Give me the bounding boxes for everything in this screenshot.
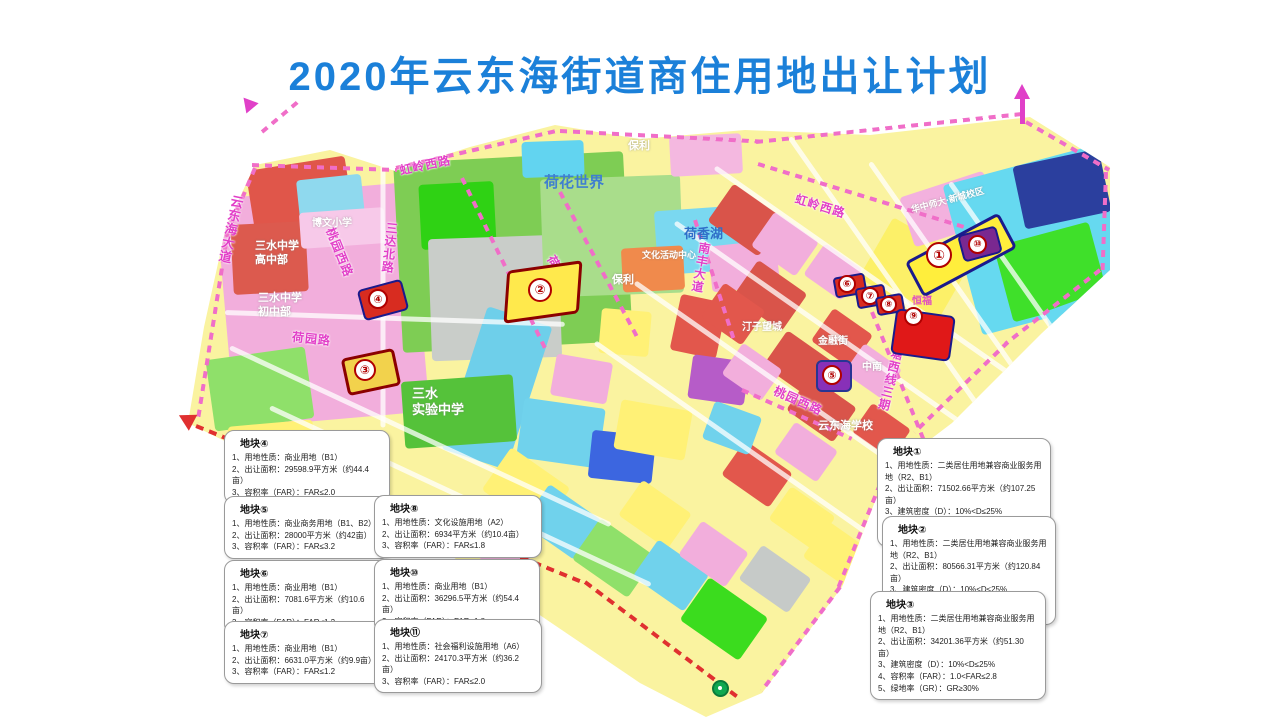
plot-callout-title: 地块① (893, 443, 1043, 458)
plot-marker-9: ⑨ (904, 307, 923, 326)
plot-marker-6: ⑥ (838, 275, 856, 293)
plot-marker-4: ④ (368, 289, 388, 309)
plot-parcel-9 (890, 308, 956, 362)
boundary-red-dash (584, 580, 738, 698)
plot-callout-11: 地块⑪ 1、用地性质：社会福利设施用地（A6） 2、出让面积：24170.3平方… (374, 619, 542, 693)
boundary-dash (756, 112, 1025, 144)
boundary-dash (760, 586, 841, 692)
red-arrow-icon (175, 407, 198, 430)
poster-canvas: 2020年云东海街道商住用地出让计划 (0, 0, 1280, 720)
area-label-culture-center: 文化活动中心 (642, 250, 696, 261)
road-dash (460, 177, 547, 350)
area-label-ccnu-campus: 华中师大·新城校区 (910, 186, 985, 216)
map-overlay: 云东海大道 虹岭西路 三达北路 荷园路 桃园西路 荷香路 南丰大道 虹岭西路 桃… (0, 0, 1280, 720)
boundary-dash (1101, 172, 1108, 272)
plot-marker-10: ⑩ (968, 235, 987, 254)
road-label-honglingxi-road-east: 虹岭西路 (793, 190, 848, 221)
plot-callout-5: 地块⑤ 1、用地性质：商业商务用地（B1、B2） 2、出让面积：28000平方米… (224, 496, 390, 559)
magenta-arrow-icon (237, 92, 258, 113)
plot-callout-lines: 1、用地性质：文化设施用地（A2） 2、出让面积：6934平方米（约10.4亩）… (382, 517, 534, 552)
plot-marker-2: ② (528, 278, 552, 302)
road-label-heyuan-road: 荷园路 (291, 328, 332, 349)
plot-callout-lines: 1、用地性质：商业商务用地（B1、B2） 2、出让面积：28000平方米（约42… (232, 518, 382, 553)
plot-callout-lines: 1、用地性质：二类居住用地兼容商业服务用地（R2、B1） 2、出让面积：3420… (878, 613, 1038, 694)
boundary-dash (560, 129, 760, 143)
road-label-tangxi-line-phase3: 塘西线三期 (875, 346, 907, 413)
area-label-sanshui-junior: 三水中学 初中部 (258, 292, 302, 320)
plot-callout-title: 地块② (898, 521, 1048, 536)
road-label-taoyuanxi-road: 桃园西路 (322, 225, 357, 280)
area-label-poly-north: 保利 (628, 140, 650, 154)
boundary-dash (1025, 120, 1110, 171)
boundary-dash (1004, 268, 1101, 345)
north-line (1020, 98, 1025, 124)
plot-callout-title: 地块⑦ (240, 626, 382, 641)
plot-marker-5: ⑤ (822, 365, 842, 385)
plot-callout-title: 地块⑪ (390, 624, 534, 639)
location-pin-icon (712, 680, 729, 697)
area-label-sanshui-high: 三水中学 高中部 (255, 240, 299, 268)
plot-callout-title: 地块④ (240, 435, 382, 450)
plot-callout-8: 地块⑧ 1、用地性质：文化设施用地（A2） 2、出让面积：6934平方米（约10… (374, 495, 542, 558)
plot-callout-title: 地块⑤ (240, 501, 382, 516)
plot-marker-3: ③ (354, 359, 376, 381)
plot-callout-title: 地块⑩ (390, 564, 532, 579)
area-label-bowen-primary: 博文小学 (312, 218, 352, 231)
plot-callout-4: 地块④ 1、用地性质：商业用地（B1） 2、出让面积：29598.9平方米（约4… (224, 430, 390, 504)
plot-callout-3: 地块③ 1、用地性质：二类居住用地兼容商业服务用地（R2、B1） 2、出让面积：… (870, 591, 1046, 700)
area-label-financial-street: 金融街 (818, 336, 848, 349)
north-arrow-icon (1014, 84, 1030, 99)
road-label-sandabei-road: 三达北路 (379, 221, 401, 274)
area-label-yundonghai-school: 云东海学校 (818, 420, 873, 434)
plot-marker-8: ⑧ (880, 296, 897, 313)
road-label-yundonghai-avenue: 云东海大道 (214, 193, 247, 265)
road-label-honglingxi-road: 虹岭西路 (398, 151, 452, 178)
area-label-poly-south: 保利 (612, 274, 634, 288)
area-label-hexiang-lake: 荷香湖 (684, 226, 723, 242)
boundary-dash (261, 100, 300, 134)
boundary-dash (252, 163, 397, 172)
plot-callout-lines: 1、用地性质：商业用地（B1） 2、出让面积：29598.9平方米（约44.4亩… (232, 452, 382, 498)
plot-callout-lines: 1、用地性质：社会福利设施用地（A6） 2、出让面积：24170.3平方米（约3… (382, 641, 534, 687)
plot-callout-7: 地块⑦ 1、用地性质：商业用地（B1） 2、出让面积：6631.0平方米（约9.… (224, 621, 390, 684)
plot-callout-title: 地块③ (886, 596, 1038, 611)
plot-callout-title: 地块⑥ (240, 565, 380, 580)
area-label-sanshui-experimental: 三水 实验中学 (412, 386, 464, 419)
plot-callout-title: 地块⑧ (390, 500, 534, 515)
plot-callout-lines: 1、用地性质：商业用地（B1） 2、出让面积：6631.0平方米（约9.9亩） … (232, 643, 382, 678)
area-label-tingziwangcheng: 汀子望城 (742, 322, 782, 335)
area-label-zhongnan: 中南 (862, 362, 882, 375)
plot-marker-1: ① (926, 242, 952, 268)
area-label-lotus-world: 荷花世界 (544, 174, 604, 193)
